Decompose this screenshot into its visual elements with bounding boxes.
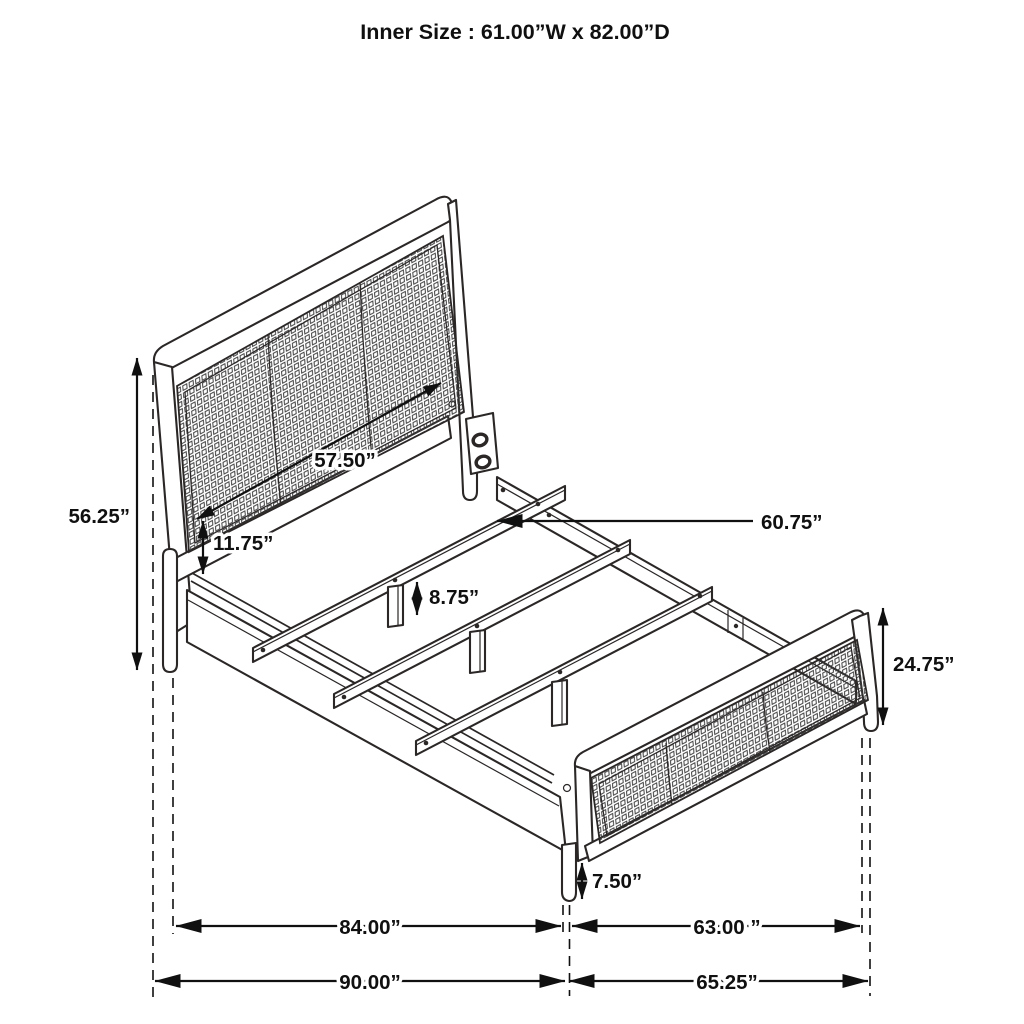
- dimension-label-footboard-height: 24.75”: [893, 653, 955, 676]
- screw-dot: [536, 502, 541, 507]
- dimension-label-footboard-leg-height: 7.50”: [592, 870, 642, 893]
- center-support-leg: [388, 585, 403, 627]
- slat: [334, 540, 630, 708]
- dimension-side-rail-span: 84.00”: [176, 916, 561, 939]
- dimension-label-footboard-overall-span: 65.25”: [696, 971, 758, 994]
- screw-dot: [342, 695, 347, 700]
- dimension-headboard-height: 56.25”: [68, 358, 137, 670]
- center-support-leg: [552, 680, 567, 726]
- dimension-footboard-leg-height: 7.50”: [582, 863, 642, 899]
- dimension-label-overall-length: 90.00”: [339, 971, 401, 994]
- dimension-center-support-leg-height: 8.75”: [417, 582, 479, 615]
- dimension-footboard-overall-span: 65.25”: [569, 971, 868, 994]
- center-rail-bracket: [466, 413, 498, 474]
- dimension-label-center-support-leg-height: 8.75”: [429, 586, 479, 609]
- screw-dot: [558, 670, 563, 675]
- inner-size-title: Inner Size : 61.00”W x 82.00”D: [360, 20, 670, 44]
- screw-dot: [547, 513, 552, 518]
- dimension-label-panel-to-rail-gap: 11.75”: [213, 532, 273, 555]
- screw-dot: [393, 578, 398, 583]
- dimension-label-side-rail-span: 84.00”: [339, 916, 401, 939]
- dimension-label-slat-length: 60.75”: [761, 511, 823, 534]
- dimension-label-footboard-span: 63.00 ”: [693, 916, 760, 939]
- dimension-footboard-height: 24.75”: [883, 608, 955, 725]
- screw-dot: [261, 648, 266, 653]
- screw-dot: [616, 548, 621, 553]
- dimension-footboard-span: 63.00 ”: [572, 916, 860, 939]
- bed-dimension-diagram-page: Inner Size : 61.00”W x 82.00”D: [0, 0, 1024, 1024]
- center-support-leg: [470, 630, 485, 673]
- headboard-front-leg: [163, 549, 177, 672]
- screw-dot: [698, 594, 703, 599]
- dimension-label-headboard-panel-width: 57.50”: [314, 449, 376, 472]
- dowel-hole: [564, 785, 571, 792]
- screw-dot: [734, 624, 738, 628]
- footboard-front-leg: [562, 843, 576, 901]
- screw-dot: [475, 624, 480, 629]
- slat-top-face: [334, 544, 630, 698]
- dimension-label-headboard-height: 56.25”: [68, 505, 130, 528]
- bed-frame-diagram: Inner Size : 61.00”W x 82.00”D: [0, 0, 1024, 1024]
- side-rail-front-board: [187, 590, 566, 852]
- screw-dot: [424, 741, 429, 746]
- dimension-overall-length: 90.00”: [155, 971, 565, 994]
- screw-dot: [501, 488, 506, 493]
